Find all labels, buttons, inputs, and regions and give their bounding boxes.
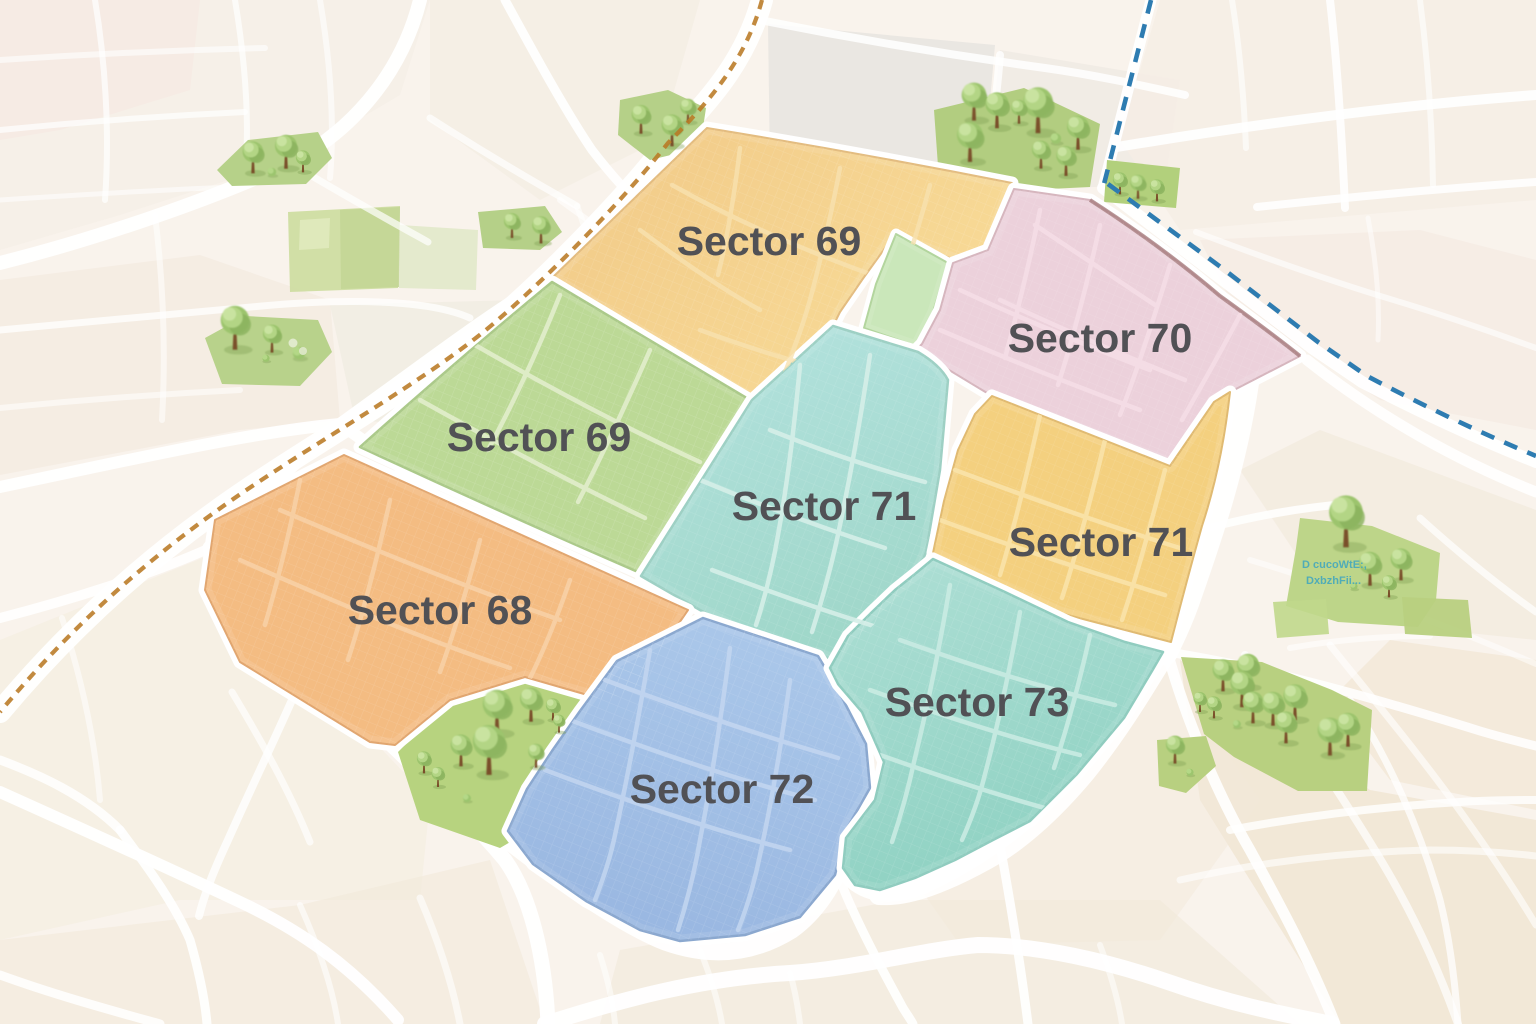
svg-text:Sector 69: Sector 69 xyxy=(677,218,862,264)
svg-text:Sector 70: Sector 70 xyxy=(1008,315,1193,361)
svg-text:DxbzhFii...: DxbzhFii... xyxy=(1306,575,1361,587)
svg-text:Sector 69: Sector 69 xyxy=(447,414,632,460)
svg-text:Sector 71: Sector 71 xyxy=(732,483,917,529)
svg-text:Sector 73: Sector 73 xyxy=(885,679,1070,725)
svg-text:Sector 72: Sector 72 xyxy=(630,766,815,812)
svg-text:Sector 71: Sector 71 xyxy=(1009,519,1194,565)
svg-text:Sector 68: Sector 68 xyxy=(348,587,533,633)
svg-text:D cucoWtE:,: D cucoWtE:, xyxy=(1302,559,1367,571)
